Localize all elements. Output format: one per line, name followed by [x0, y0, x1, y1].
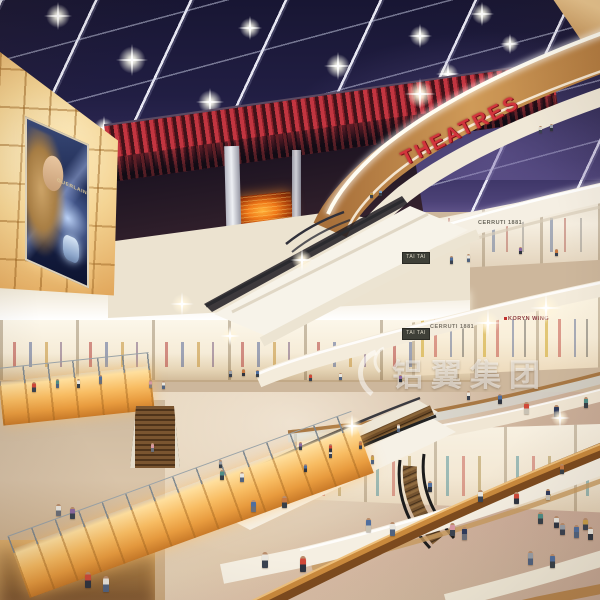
sparkle-highlight — [340, 414, 364, 438]
sparkle-highlight — [170, 292, 194, 316]
sparkle-highlight — [290, 248, 314, 272]
sparkle-highlight — [474, 309, 502, 337]
sparkle-highlight — [220, 326, 240, 346]
sparkle-highlight — [404, 78, 436, 110]
sparkle-highlight — [530, 292, 562, 324]
mall-atrium-rendering: GUERLAIN THEATRES TAI TAI TAI TAI CERRUT… — [0, 0, 600, 600]
fascia-sparkles — [0, 0, 600, 600]
sparkle-highlight — [550, 408, 570, 428]
